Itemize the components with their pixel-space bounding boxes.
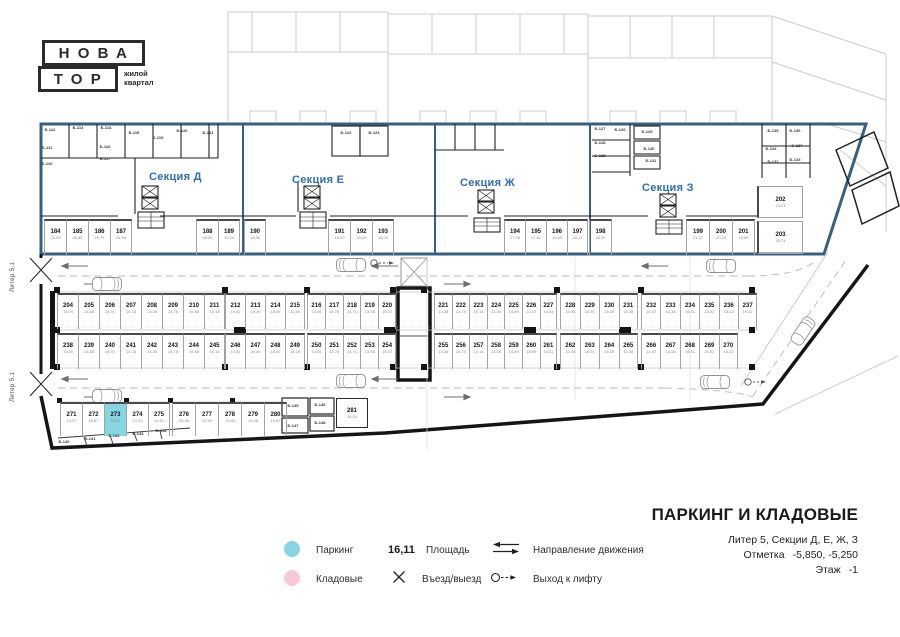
stall-area: 19,48	[242, 418, 264, 423]
parking-stall-244[interactable]: 24415,85	[183, 333, 204, 369]
parking-stall-194[interactable]: 19417,18	[504, 219, 525, 255]
parking-stall-236[interactable]: 23618,22	[719, 293, 738, 329]
parking-stall-group: 19921,2720020,2320119,89	[686, 219, 755, 255]
parking-stall-254[interactable]: 25415,07	[378, 333, 396, 369]
title-floor-line: Этаж-1	[528, 564, 858, 576]
stall-area: 25,79	[89, 235, 110, 240]
storage-unit-label-Б-110: Б-110	[42, 162, 53, 166]
stall-area: 22,59	[196, 418, 218, 423]
parking-stall-195[interactable]: 19517,61	[525, 219, 546, 255]
stall-area: 13,38	[361, 309, 378, 314]
stall-area: 14,51	[226, 349, 245, 354]
parking-stall-group: 19018,80	[244, 219, 266, 255]
stall-area: 15,18	[470, 309, 487, 314]
parking-stall-234[interactable]: 23415,41	[680, 293, 699, 329]
storage-unit-label-Б-114: Б-114	[101, 126, 112, 130]
stall-area: 19,89	[733, 235, 754, 240]
storage-unit-label-Б-128: Б-128	[595, 141, 606, 145]
stall-area: 15,85	[184, 309, 204, 314]
parking-stall-group: 24614,5124720,4624816,0524918,19	[225, 333, 305, 369]
legend-area-value: 16,11	[388, 544, 415, 556]
parking-stall-group: 19417,1819517,6119616,6319716,17	[504, 219, 588, 255]
stall-area: 13,38	[488, 349, 505, 354]
site-map: З Ю С В 5 ЛИТЕР АБВГДЕЖЗул. Энтузиастову…	[0, 495, 280, 635]
parking-stall-204[interactable]: 20415,04	[57, 293, 78, 329]
parking-stall-233[interactable]: 23313,38	[660, 293, 679, 329]
parking-stall-227[interactable]: 22714,51	[540, 293, 558, 329]
stall-area: 14,87	[642, 349, 660, 354]
stall-area: 16,63	[547, 235, 567, 240]
parking-stall-189[interactable]: 18919,40	[218, 219, 240, 255]
storage-unit-label-Б-127: Б-127	[595, 127, 606, 131]
stall-area: 14,71	[344, 349, 361, 354]
storage-unit-label-Б-116: Б-116	[100, 145, 111, 149]
parking-stall-group: 19118,0919215,0419315,09	[328, 219, 394, 255]
stall-area: 14,89	[505, 309, 522, 314]
liter-label: Литер 5.1	[10, 262, 16, 292]
storage-unit-label-Б-131: Б-131	[646, 159, 657, 163]
parking-stall-228[interactable]: 22815,05	[560, 293, 580, 329]
parking-stall-group: 25513,3825614,7825715,1825813,3825914,89…	[434, 333, 557, 369]
direction-icon	[490, 540, 522, 556]
parking-stall-249[interactable]: 24918,19	[285, 333, 305, 369]
parking-stall-206[interactable]: 20614,91	[99, 293, 120, 329]
storage-unit-label-Б-125: Б-125	[595, 154, 606, 158]
stall-area: 14,87	[642, 309, 660, 314]
stall-area: 13,38	[620, 309, 638, 314]
parking-stall-263[interactable]: 26316,91	[580, 333, 600, 369]
stall-area: 16,87	[83, 418, 104, 423]
stall-area: 18,95	[523, 349, 540, 354]
stall-area: 15,09	[373, 235, 393, 240]
parking-stall-217[interactable]: 21715,78	[325, 293, 343, 329]
parking-stall-191[interactable]: 19118,09	[328, 219, 350, 255]
parking-stall-259[interactable]: 25914,89	[504, 333, 522, 369]
parking-stall-200[interactable]: 20020,23	[709, 219, 732, 255]
entry-exit-icon	[392, 570, 406, 584]
stall-area: 13,58	[361, 349, 378, 354]
parking-stall-231[interactable]: 23113,38	[619, 293, 639, 329]
stall-area: 13,38	[661, 309, 679, 314]
parking-stall-280[interactable]: 28015,87	[264, 402, 287, 436]
stall-area: 19,42	[739, 309, 756, 314]
parking-stall-226[interactable]: 22622,37	[522, 293, 540, 329]
stall-area: 15,04	[351, 235, 372, 240]
storage-unit-label-Б-111: Б-111	[42, 146, 52, 150]
parking-stall-221[interactable]: 22113,38	[434, 293, 452, 329]
parking-stall-277[interactable]: 27722,59	[195, 402, 218, 436]
stall-area: 13,38	[79, 349, 99, 354]
stall-area: 16,05	[600, 309, 619, 314]
stall-area: 14,78	[121, 349, 141, 354]
parking-stall-278[interactable]: 27819,83	[218, 402, 241, 436]
storage-unit-label-Б-142: Б-142	[109, 434, 120, 438]
parking-stall-197[interactable]: 19716,17	[567, 219, 588, 255]
parking-plan-page: НОВА ТОР жилой квартал 18425,2918530,851…	[0, 0, 900, 637]
stall-area: 14,33	[127, 418, 148, 423]
stall-area: 14,91	[100, 309, 120, 314]
stall-area: 16,05	[266, 309, 285, 314]
parking-stall-260[interactable]: 26018,95	[522, 333, 540, 369]
parking-stall-210[interactable]: 21015,85	[183, 293, 204, 329]
parking-stall-241[interactable]: 24114,78	[120, 333, 141, 369]
parking-stall-265[interactable]: 26513,38	[619, 333, 639, 369]
parking-swatch-icon	[284, 541, 300, 557]
parking-stall-267[interactable]: 26713,58	[660, 333, 679, 369]
parking-stall-279[interactable]: 27919,48	[241, 402, 264, 436]
stall-area: 18,55	[197, 235, 218, 240]
storage-unit-label-Б-113: Б-113	[73, 126, 84, 130]
storage-unit-label-Б-146: Б-146	[315, 403, 326, 407]
stall-area: 14,45	[308, 309, 325, 314]
parking-stall-group: 25014,4525115,7825214,7125313,5825415,07	[307, 333, 396, 369]
storage-unit-label-Б-133: Б-133	[790, 158, 801, 162]
parking-stall-186[interactable]: 18625,79	[88, 219, 110, 255]
stall-area: 16,91	[581, 349, 600, 354]
stall-area: 19,21	[775, 204, 785, 208]
stall-area: 13,38	[142, 309, 162, 314]
parking-stall-271[interactable]: 27115,47	[60, 402, 82, 436]
stall-area: 21,27	[687, 235, 709, 240]
parking-stall-242[interactable]: 24213,38	[141, 333, 162, 369]
parking-stall-211[interactable]: 21114,18	[204, 293, 225, 329]
storage-unit-label-Б-126: Б-126	[615, 128, 626, 132]
parking-stall-205[interactable]: 20513,38	[78, 293, 99, 329]
stall-area: 14,78	[163, 309, 183, 314]
stall-area: 16,17	[568, 235, 587, 240]
stall-area: 19,83	[219, 418, 241, 423]
parking-stall-243[interactable]: 24314,78	[162, 333, 183, 369]
stall-area: 13,38	[435, 309, 452, 314]
stall-area: 24,56	[111, 235, 131, 240]
legend-area-label: Площадь	[426, 545, 470, 556]
stall-area: 15,87	[265, 418, 286, 423]
parking-stall-268[interactable]: 26815,41	[680, 333, 699, 369]
parking-stall-215[interactable]: 21522,85	[285, 293, 305, 329]
parking-stall-250[interactable]: 25014,45	[307, 333, 325, 369]
parking-stall-207[interactable]: 20714,78	[120, 293, 141, 329]
stall-area: 14,51	[541, 309, 557, 314]
liter-label: Литер 5.1	[10, 372, 16, 402]
stall-area: 15,07	[379, 349, 395, 354]
page-title: ПАРКИНГ И КЛАДОВЫЕ	[528, 505, 858, 525]
stall-area: 20,46	[246, 349, 265, 354]
stall-area: 15,18	[470, 349, 487, 354]
parking-stall-group: 18425,2918530,8518625,7918724,56	[44, 219, 132, 255]
parking-stall-246[interactable]: 24614,51	[225, 333, 245, 369]
stall-area: 14,78	[453, 349, 470, 354]
section-label: Секция З	[642, 182, 694, 194]
parking-stall-220[interactable]: 22015,07	[378, 293, 396, 329]
stall-area: 14,51	[541, 349, 557, 354]
parking-stall-216[interactable]: 21614,45	[307, 293, 325, 329]
storage-unit-label-Б-143: Б-143	[133, 432, 144, 436]
parking-stall-202[interactable]: 20219,21	[757, 186, 803, 218]
parking-stall-group: 26614,8726713,5826815,4126920,6227018,22	[641, 333, 738, 369]
stall-area: 13,38	[488, 309, 505, 314]
storage-unit-label-Б-130: Б-130	[644, 147, 655, 151]
storage-unit-label-Б-115: Б-115	[129, 131, 140, 135]
parking-stall-258[interactable]: 25813,38	[487, 333, 505, 369]
parking-stall-237[interactable]: 23719,42	[738, 293, 757, 329]
parking-stall-261[interactable]: 26114,51	[540, 333, 558, 369]
stall-area: 23,02	[700, 309, 718, 314]
stall-area: 13,38	[620, 349, 638, 354]
stall-area: 25,46	[173, 418, 195, 423]
title-block: ПАРКИНГ И КЛАДОВЫЕ Литер 5, Секции Д, Е,…	[528, 505, 858, 576]
parking-stall-209[interactable]: 20914,78	[162, 293, 183, 329]
parking-stall-245[interactable]: 24514,18	[204, 333, 225, 369]
parking-stall-239[interactable]: 23913,38	[78, 333, 99, 369]
section-label: Секция Д	[149, 171, 202, 183]
stall-area: 18,22	[720, 349, 737, 354]
parking-stall-235[interactable]: 23523,02	[699, 293, 718, 329]
parking-stall-256[interactable]: 25614,78	[452, 333, 470, 369]
parking-stall-230[interactable]: 23016,05	[599, 293, 619, 329]
storage-unit-label-Б-123: Б-123	[369, 131, 380, 135]
stall-area: 30,85	[67, 235, 88, 240]
parking-stall-group: 18818,5518919,40	[196, 219, 240, 255]
parking-stall-232[interactable]: 23214,87	[641, 293, 660, 329]
parking-stall-203[interactable]: 20318,74	[757, 221, 803, 254]
stall-area: 15,85	[184, 349, 204, 354]
storage-unit-label-Б-112: Б-112	[45, 128, 56, 132]
parking-stall-269[interactable]: 26920,62	[699, 333, 718, 369]
stall-area: 20,62	[700, 349, 718, 354]
parking-stall-262[interactable]: 26215,05	[560, 333, 580, 369]
parking-stall-190[interactable]: 19018,80	[244, 219, 266, 255]
storage-unit-label-Б-144: Б-144	[156, 429, 167, 433]
title-mark-line: Отметка-5,850, -5,250	[528, 549, 858, 561]
stall-area: 15,05	[561, 349, 580, 354]
parking-stall-group: 21214,5121324,1921416,0521522,85	[225, 293, 305, 329]
parking-stall-218[interactable]: 21814,71	[343, 293, 361, 329]
parking-stall-224[interactable]: 22413,38	[487, 293, 505, 329]
parking-stall-group: 27625,4627722,5927819,8327919,4828015,87	[172, 402, 287, 436]
stall-area: 15,41	[681, 349, 699, 354]
storage-unit-label-Б-117: Б-117	[100, 157, 111, 161]
parking-stall-201[interactable]: 20119,89	[732, 219, 755, 255]
storage-unit-label-Б-140: Б-140	[59, 440, 70, 444]
stall-area: 18,74	[775, 239, 785, 243]
stall-area: 14,78	[453, 309, 470, 314]
parking-stall-257[interactable]: 25715,18	[469, 333, 487, 369]
stall-area: 15,07	[379, 309, 395, 314]
parking-stall-248[interactable]: 24816,05	[265, 333, 285, 369]
storage-unit-label-Б-137: Б-137	[792, 144, 803, 148]
parking-stall-247[interactable]: 24720,46	[245, 333, 265, 369]
parking-stall-273[interactable]: 27315,81	[104, 402, 126, 436]
lift-exit-icon	[490, 571, 518, 584]
parking-stall-238[interactable]: 23815,15	[57, 333, 78, 369]
storage-unit-label-Б-145: Б-145	[288, 404, 299, 408]
section-label: Секция Е	[292, 174, 344, 186]
parking-stall-229[interactable]: 22916,91	[580, 293, 600, 329]
title-subtitle: Литер 5, Секции Д, Е, Ж, З	[528, 534, 858, 546]
stall-area: 15,47	[61, 418, 82, 423]
stall-area: 14,45	[308, 349, 325, 354]
stall-area: 18,22	[720, 309, 738, 314]
stall-number: 202	[775, 197, 785, 203]
stall-area: 14,18	[205, 309, 224, 314]
stall-area: 22,37	[523, 309, 540, 314]
storage-unit-label-Б-122: Б-122	[341, 131, 352, 135]
stall-area: 24,19	[246, 309, 265, 314]
storage-unit-label-Б-121: Б-121	[203, 131, 214, 135]
parking-stall-193[interactable]: 19315,09	[372, 219, 394, 255]
parking-stall-213[interactable]: 21324,19	[245, 293, 265, 329]
parking-stall-199[interactable]: 19921,27	[686, 219, 709, 255]
stall-area: 25,29	[45, 235, 66, 240]
parking-stall-group: 19818,35	[589, 219, 612, 255]
stall-area: 15,04	[58, 309, 78, 314]
parking-stall-192[interactable]: 19215,04	[350, 219, 372, 255]
parking-stall-group: 20415,0420513,3820614,9120714,7820813,38…	[57, 293, 225, 329]
stall-area: 15,15	[58, 349, 78, 354]
stall-area: 14,51	[226, 309, 245, 314]
parking-stall-198[interactable]: 19818,35	[589, 219, 612, 255]
stall-area: 19,40	[219, 235, 239, 240]
stall-area: 18,35	[590, 235, 611, 240]
stall-area: 15,81	[105, 418, 126, 423]
stall-area: 13,38	[142, 349, 162, 354]
parking-stall-group: 21614,4521715,7821814,7121913,3822015,07	[307, 293, 396, 329]
parking-stall-187[interactable]: 18724,56	[110, 219, 132, 255]
storage-unit-label-Б-136: Б-136	[790, 129, 801, 133]
parking-stall-group: 27115,4727216,8727315,8127414,3327515,81	[60, 402, 170, 436]
parking-stall-219[interactable]: 21913,38	[360, 293, 378, 329]
parking-stall-223[interactable]: 22315,18	[469, 293, 487, 329]
parking-stall-184[interactable]: 18425,29	[44, 219, 66, 255]
stall-area: 14,78	[163, 349, 183, 354]
legend-storage-label: Кладовые	[316, 574, 363, 585]
stall-area: 13,38	[79, 309, 99, 314]
parking-stall-222[interactable]: 22214,78	[452, 293, 470, 329]
parking-stall-group: 23815,1523913,3824014,9124114,7824213,38…	[57, 333, 225, 369]
parking-stall-281[interactable]: 28116,20	[336, 398, 368, 428]
storage-unit-label-Б-120: Б-120	[177, 129, 188, 133]
parking-stall-253[interactable]: 25313,58	[360, 333, 378, 369]
legend-parking-label: Паркинг	[316, 545, 353, 556]
storage-unit-label-Б-129: Б-129	[642, 130, 653, 134]
stall-area: 15,41	[681, 309, 699, 314]
stall-area: 22,85	[286, 309, 304, 314]
parking-stall-group: 23214,8723313,3823415,4123523,0223618,22…	[641, 293, 757, 329]
parking-stall-266[interactable]: 26614,87	[641, 333, 660, 369]
parking-stall-214[interactable]: 21416,05	[265, 293, 285, 329]
stall-area: 17,61	[526, 235, 546, 240]
parking-stall-276[interactable]: 27625,46	[172, 402, 195, 436]
parking-stall-group: 22815,0522916,9123016,0523113,38	[560, 293, 638, 329]
storage-swatch-icon	[284, 570, 300, 586]
stall-area: 14,71	[344, 309, 361, 314]
stall-area: 14,91	[100, 349, 120, 354]
stall-area: 14,18	[205, 349, 224, 354]
stall-area: 17,18	[505, 235, 525, 240]
stall-area: 15,78	[326, 309, 343, 314]
stall-area: 14,89	[505, 349, 522, 354]
stall-area: 15,78	[326, 349, 343, 354]
storage-unit-label-Б-141: Б-141	[85, 437, 96, 441]
stall-area: 18,80	[245, 235, 265, 240]
stall-area: 18,09	[329, 235, 350, 240]
parking-stall-272[interactable]: 27216,87	[82, 402, 104, 436]
stall-area: 16,20	[347, 415, 357, 419]
storage-unit-label-Б-134: Б-134	[766, 147, 777, 151]
stall-area: 16,05	[266, 349, 285, 354]
parking-stall-185[interactable]: 18530,85	[66, 219, 88, 255]
stall-area: 20,23	[710, 235, 732, 240]
parking-stall-212[interactable]: 21214,51	[225, 293, 245, 329]
stall-area: 18,19	[286, 349, 304, 354]
parking-stall-group: 22113,3822214,7822315,1822413,3822514,89…	[434, 293, 557, 329]
parking-stall-255[interactable]: 25513,38	[434, 333, 452, 369]
parking-stall-196[interactable]: 19616,63	[546, 219, 567, 255]
stall-area: 15,81	[149, 418, 169, 423]
stall-area: 13,38	[435, 349, 452, 354]
parking-stall-264[interactable]: 26416,05	[599, 333, 619, 369]
stall-area: 16,91	[581, 309, 600, 314]
parking-stall-225[interactable]: 22514,89	[504, 293, 522, 329]
storage-unit-label-Б-135: Б-135	[768, 129, 779, 133]
storage-unit-label-Б-132: Б-132	[768, 160, 779, 164]
stall-area: 15,05	[561, 309, 580, 314]
stall-area: 16,05	[600, 349, 619, 354]
storage-unit-label-Б-119: Б-119	[153, 136, 164, 140]
storage-unit-label-Б-148: Б-148	[315, 421, 326, 425]
stall-area: 13,58	[661, 349, 679, 354]
parking-stall-group: 26215,0526316,9126416,0526513,38	[560, 333, 638, 369]
parking-stall-252[interactable]: 25214,71	[343, 333, 361, 369]
section-label: Секция Ж	[460, 177, 515, 189]
legend-entry-label: Въезд/выезд	[422, 574, 481, 585]
storage-unit-label-Б-147: Б-147	[288, 424, 299, 428]
parking-stall-270[interactable]: 27018,22	[719, 333, 738, 369]
parking-stall-188[interactable]: 18818,55	[196, 219, 218, 255]
parking-stall-240[interactable]: 24014,91	[99, 333, 120, 369]
stall-number: 281	[347, 408, 357, 414]
parking-stall-208[interactable]: 20813,38	[141, 293, 162, 329]
stall-area: 14,78	[121, 309, 141, 314]
parking-stall-251[interactable]: 25115,78	[325, 333, 343, 369]
